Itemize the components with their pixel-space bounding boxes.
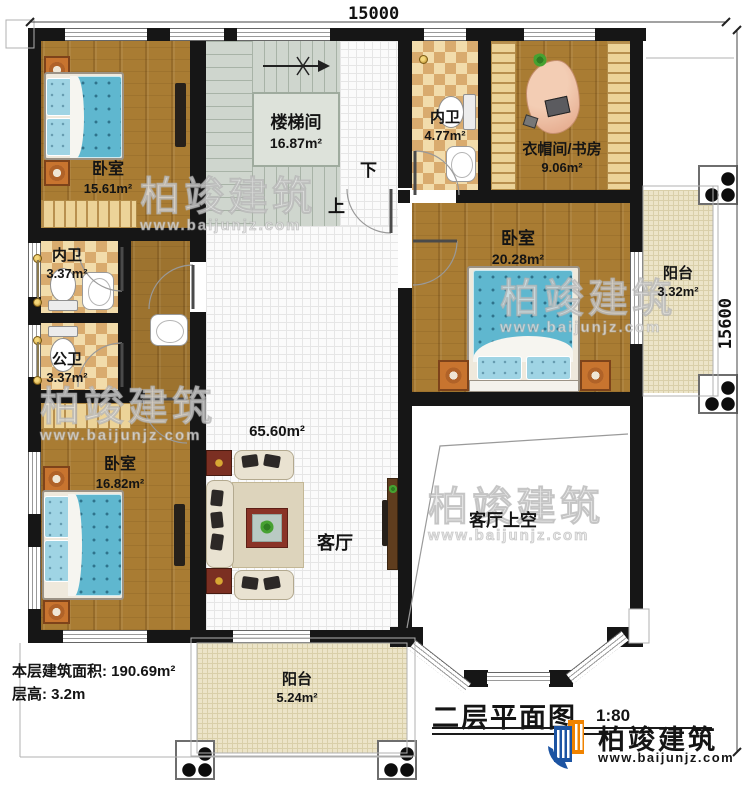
room-area: 9.06m²: [492, 160, 632, 177]
label-living-void: 客厅上空: [438, 510, 568, 532]
room-area: 4.77m²: [412, 128, 478, 145]
stair-up-label: 上: [328, 192, 345, 217]
room-name: 内卫: [35, 246, 99, 266]
room-area: 3.37m²: [35, 370, 99, 387]
room-name: 阳台: [247, 670, 347, 690]
label-balcony-bottom: 阳台 5.24m²: [247, 670, 347, 706]
floor-notes: 本层建筑面积: 190.69m² 层高: 3.2m: [12, 660, 175, 706]
stair-down-label: 下: [360, 156, 377, 181]
room-area: 20.28m²: [448, 250, 588, 268]
label-bath-ensuite: 内卫 3.37m²: [35, 246, 99, 282]
logo-url: www.baijunjz.com: [598, 750, 734, 765]
label-living-room: 客厅: [298, 532, 372, 555]
dimension-top: 15000: [348, 4, 399, 24]
floor-plan: 柏竣建筑 www.baijunjz.com 柏竣建筑 www.baijunjz.…: [0, 0, 750, 786]
logo-icon: [544, 716, 596, 772]
room-name: 卧室: [48, 160, 168, 181]
room-name: 卧室: [448, 228, 588, 250]
room-name: 衣帽间/书房: [492, 140, 632, 160]
room-name: 楼梯间: [246, 112, 346, 134]
watermark-name: 柏竣建筑: [40, 386, 216, 428]
label-balcony-right: 阳台 3.32m²: [643, 264, 713, 300]
label-living-area: 65.60m²: [227, 422, 327, 442]
label-bath-top: 内卫 4.77m²: [412, 108, 478, 144]
room-name: 客厅: [298, 532, 372, 555]
room-area: 16.87m²: [246, 134, 346, 152]
room-name: 内卫: [412, 108, 478, 128]
watermark: 柏竣建筑 www.baijunjz.com: [40, 386, 216, 444]
label-cloakroom-study: 衣帽间/书房 9.06m²: [492, 140, 632, 176]
label-bedroom-top-left: 卧室 15.61m²: [48, 160, 168, 198]
room-name: 卧室: [58, 455, 182, 476]
room-name: 公卫: [35, 350, 99, 370]
room-area: 5.24m²: [247, 690, 347, 707]
floor-height-note: 层高: 3.2m: [12, 683, 175, 706]
room-area: 15.61m²: [48, 181, 168, 198]
label-stairwell: 楼梯间 16.87m²: [246, 112, 346, 152]
label-bedroom-right: 卧室 20.28m²: [448, 228, 588, 268]
stair-arrow: [263, 57, 330, 75]
label-bath-public: 公卫 3.37m²: [35, 350, 99, 386]
room-name: 阳台: [643, 264, 713, 284]
dimension-right: 15600: [716, 298, 736, 349]
room-name: 客厅上空: [438, 510, 568, 532]
room-area: 16.82m²: [58, 476, 182, 493]
label-bedroom-bottom: 卧室 16.82m²: [58, 455, 182, 493]
floor-area-note: 本层建筑面积: 190.69m²: [12, 660, 175, 683]
watermark-url: www.baijunjz.com: [140, 218, 316, 234]
room-area: 65.60m²: [227, 422, 327, 442]
room-area: 3.32m²: [643, 284, 713, 301]
watermark-url: www.baijunjz.com: [500, 320, 676, 336]
watermark-url: www.baijunjz.com: [40, 428, 216, 444]
room-area: 3.37m²: [35, 266, 99, 283]
